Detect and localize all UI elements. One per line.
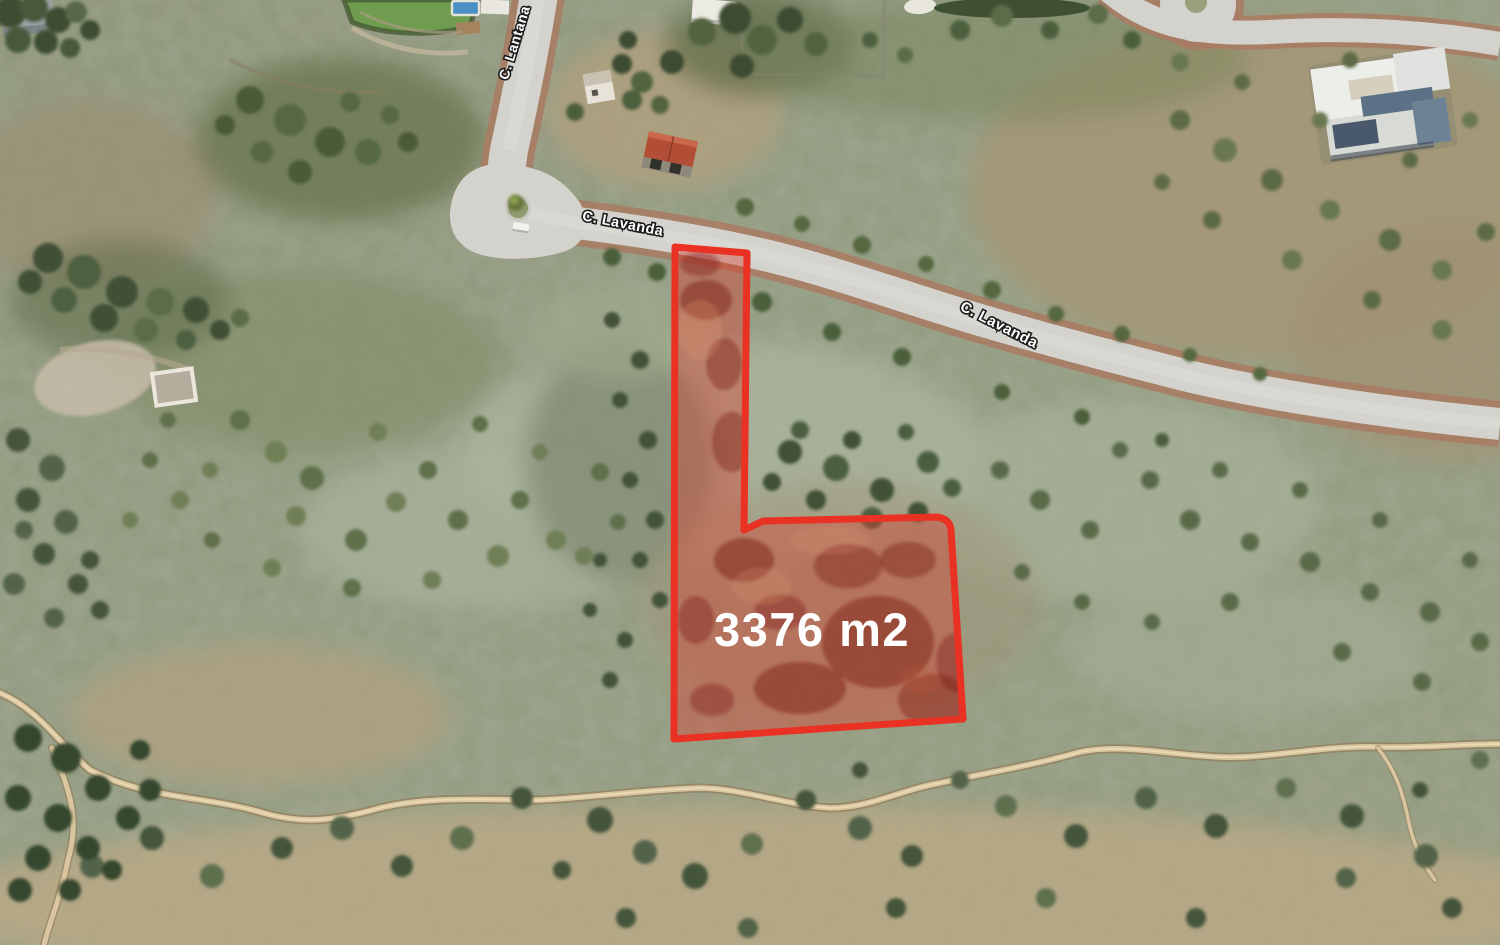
satellite-scene: 3376 m2 C. Lantana C. Lavanda C. Lavanda — [0, 0, 1500, 945]
pool-pavilion — [481, 0, 509, 14]
swimming-pool — [452, 1, 479, 15]
aerial-map[interactable]: 3376 m2 C. Lantana C. Lavanda C. Lavanda — [0, 0, 1500, 945]
ruin-foundation — [152, 368, 196, 405]
plot-area-label: 3376 m2 — [714, 603, 910, 656]
cottage-ruin — [583, 70, 616, 104]
modern-villa — [1308, 47, 1459, 165]
